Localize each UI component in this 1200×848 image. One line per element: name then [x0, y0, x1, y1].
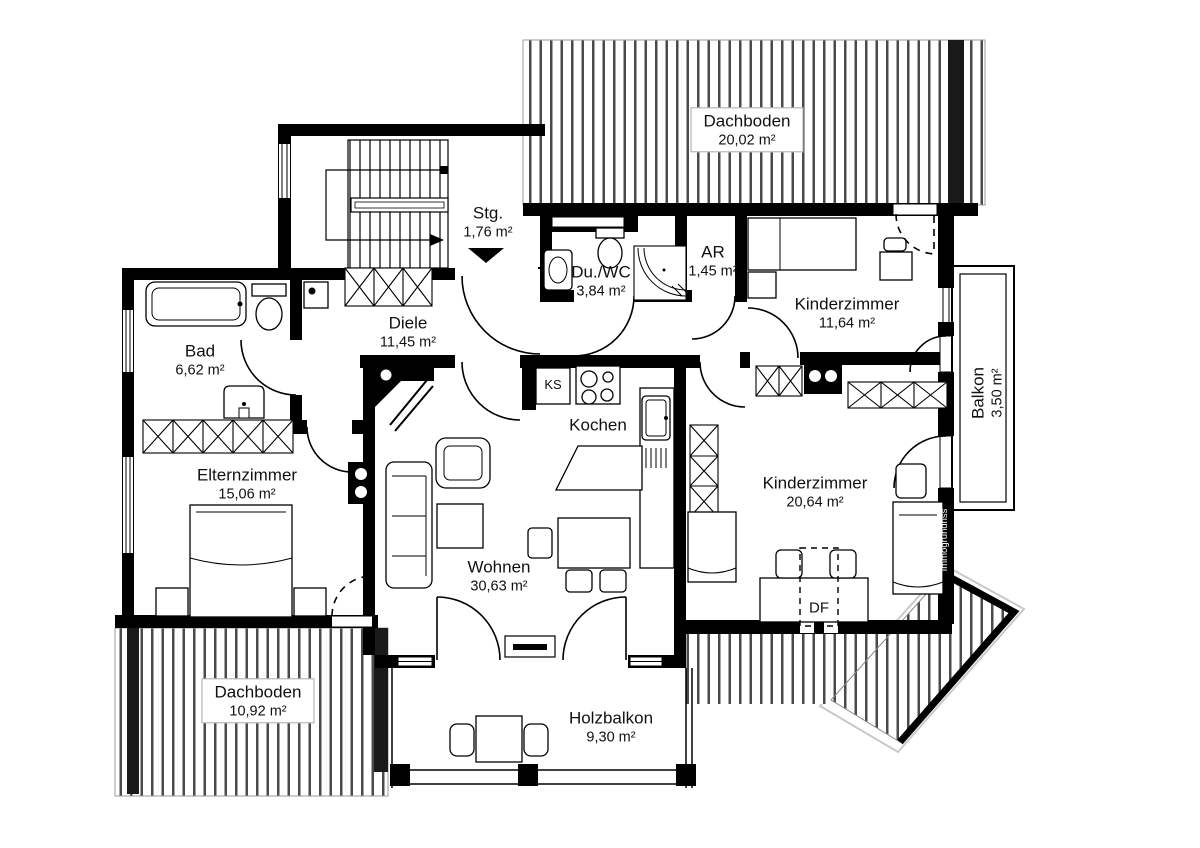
- watermark-text: Immogrundriss: [939, 508, 950, 571]
- kitchen-sink: [642, 396, 670, 468]
- room-label-dachboden-top: Dachboden20,02 m²: [691, 107, 804, 152]
- room-area: 15,06 m²: [197, 486, 297, 504]
- door-kinderzimmer2: [700, 362, 745, 407]
- stove: [576, 366, 620, 404]
- railing-posts: [390, 764, 696, 786]
- room-area: 1,45 m²: [688, 263, 737, 281]
- room-label-ar: AR1,45 m²: [688, 241, 737, 280]
- desk-kz1: [880, 238, 912, 280]
- room-area: 30,63 m²: [467, 578, 530, 596]
- room-label-duwc: Du./WC3,84 m²: [571, 261, 631, 300]
- room-name: Kinderzimmer: [795, 293, 900, 314]
- stove-front: [390, 380, 433, 431]
- room-label-elternzimmer: Elternzimmer15,06 m²: [197, 464, 297, 503]
- room-area: 3,84 m²: [571, 283, 631, 301]
- room-name: Elternzimmer: [197, 464, 297, 485]
- window-elternzimmer: [123, 457, 133, 553]
- double-bed: [190, 505, 292, 617]
- marker-ks: KS: [544, 377, 561, 393]
- wardrobe-diele: [345, 268, 432, 306]
- balcony-table: [476, 716, 522, 762]
- marker-text: KS: [544, 377, 561, 393]
- room-label-kochen: Kochen: [569, 414, 627, 435]
- window-kinderzimmer1: [940, 288, 952, 322]
- marker-text: DF: [809, 600, 829, 619]
- room-area: 10,92 m²: [215, 703, 302, 721]
- room-label-holzbalkon: Holzbalkon9,30 m²: [569, 707, 653, 746]
- room-name: Kinderzimmer: [763, 472, 868, 493]
- handrail: [351, 198, 448, 212]
- room-area: 1,76 m²: [463, 224, 512, 242]
- washer: [304, 282, 328, 308]
- toilet-bad: [252, 284, 286, 330]
- bed-kinderzimmer1: [748, 218, 856, 270]
- room-area: 20,02 m²: [704, 132, 791, 150]
- room-name: Du./WC: [571, 261, 631, 282]
- room-label-wohnen: Wohnen30,63 m²: [467, 556, 530, 595]
- room-name: AR: [688, 241, 737, 262]
- room-name: Wohnen: [467, 556, 530, 577]
- washbasin-bad: [224, 386, 264, 418]
- door-ar: [692, 296, 735, 339]
- sofa: [386, 462, 432, 588]
- room-label-balkon: Balkon3,50 m²: [967, 367, 1006, 419]
- floor-plan: Immogrundriss Dachboden20,02 m² Stg.1,76…: [0, 0, 1200, 848]
- bathtub: [146, 282, 246, 326]
- wardrobe-kz2-top: [756, 366, 802, 396]
- room-label-kinderzimmer1: Kinderzimmer11,64 m²: [795, 293, 900, 332]
- sidelight-left: [398, 657, 432, 666]
- french-doors-holzbalkon: [437, 597, 626, 660]
- room-name: Dachboden: [704, 110, 791, 131]
- room-name: Kochen: [569, 414, 627, 435]
- door-elternzimmer: [307, 427, 352, 472]
- room-area: 11,64 m²: [795, 315, 900, 333]
- room-area: 11,45 m²: [380, 334, 436, 352]
- door-kinderzimmer1: [748, 308, 798, 358]
- door-stairs-diele: [462, 276, 540, 354]
- dining-table: [558, 518, 630, 568]
- opening-elternzimmer-dachboden: [332, 616, 372, 627]
- cupboard-kz1: [748, 272, 776, 298]
- door-duwc: [574, 296, 634, 356]
- room-name: Dachboden: [215, 681, 302, 702]
- sidelight-right: [630, 657, 662, 666]
- window-stairwell: [279, 144, 290, 198]
- nightstand-kz2: [896, 464, 926, 498]
- window-bad: [123, 310, 133, 372]
- room-label-dachboden-bottom: Dachboden10,92 m²: [202, 678, 315, 723]
- room-name: Bad: [175, 340, 224, 361]
- wardrobe-kz1-bottom: [848, 382, 947, 408]
- coffee-table: [437, 504, 483, 548]
- room-area: 20,64 m²: [763, 494, 868, 512]
- room-area: 3,50 m²: [989, 367, 1007, 419]
- room-label-diele: Diele11,45 m²: [380, 312, 436, 351]
- shower: [634, 246, 686, 300]
- door-wohnen: [462, 362, 520, 420]
- room-name: Holzbalkon: [569, 707, 653, 728]
- stairs-down-arrow: [468, 248, 504, 263]
- room-label-stg: Stg.1,76 m²: [463, 202, 512, 241]
- room-area: 9,30 m²: [569, 729, 653, 747]
- bed-kz2-left: [688, 512, 736, 582]
- room-area: 6,62 m²: [175, 362, 224, 380]
- room-label-kinderzimmer2: Kinderzimmer20,64 m²: [763, 472, 868, 511]
- room-name: Balkon: [967, 367, 988, 419]
- bed-kz2-right: [893, 502, 943, 594]
- wardrobe-elternzimmer: [143, 420, 293, 453]
- marker-df: DF: [809, 600, 829, 619]
- room-label-bad: Bad6,62 m²: [175, 340, 224, 379]
- wardrobe-kz2-left: [690, 425, 718, 517]
- room-name: Diele: [380, 312, 436, 333]
- room-name: Stg.: [463, 202, 512, 223]
- armchair: [436, 438, 490, 488]
